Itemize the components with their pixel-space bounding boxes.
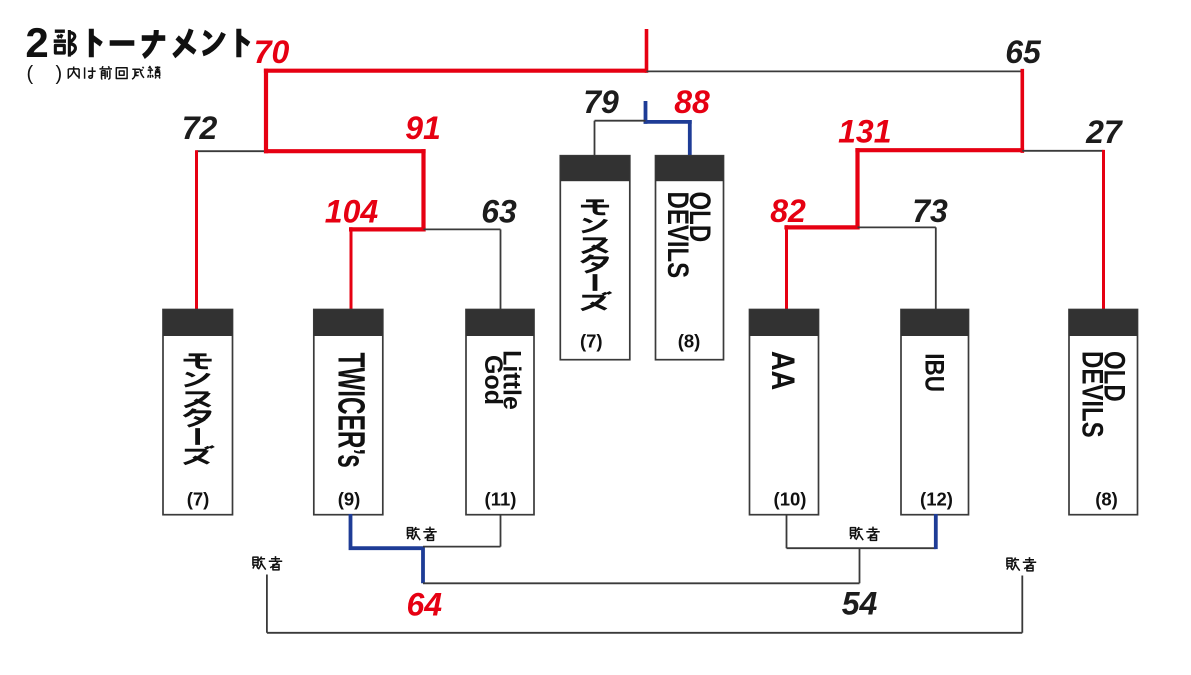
svg-text:God: God: [479, 355, 507, 405]
svg-text:(: (: [27, 63, 34, 85]
svg-text:IBU: IBU: [919, 353, 948, 392]
svg-text:(10): (10): [774, 489, 807, 510]
svg-text:AA: AA: [764, 351, 800, 390]
svg-text:64: 64: [407, 587, 443, 623]
svg-text:88: 88: [674, 84, 710, 120]
svg-text:TWICER’s: TWICER’s: [330, 353, 373, 468]
svg-text:2: 2: [25, 19, 48, 66]
svg-text:91: 91: [405, 110, 441, 146]
svg-text:(11): (11): [485, 489, 517, 510]
svg-text:(9): (9): [338, 489, 361, 510]
svg-text:82: 82: [770, 193, 806, 229]
svg-text:70: 70: [254, 34, 290, 70]
svg-text:73: 73: [912, 193, 948, 229]
svg-text:79: 79: [583, 84, 619, 120]
svg-text:27: 27: [1085, 114, 1124, 150]
svg-text:(7): (7): [187, 489, 210, 510]
svg-text:DEVILS: DEVILS: [661, 192, 695, 279]
svg-text:): ): [56, 63, 63, 85]
svg-text:(7): (7): [580, 331, 603, 352]
svg-text:72: 72: [182, 110, 218, 146]
svg-text:(12): (12): [920, 489, 953, 510]
svg-text:104: 104: [325, 194, 379, 230]
svg-text:54: 54: [842, 586, 878, 622]
svg-text:(8): (8): [1095, 489, 1118, 510]
svg-text:63: 63: [481, 194, 517, 230]
svg-text:(8): (8): [678, 331, 701, 352]
svg-text:DEVILS: DEVILS: [1076, 351, 1110, 438]
svg-text:65: 65: [1005, 34, 1042, 70]
svg-text:131: 131: [838, 114, 891, 150]
